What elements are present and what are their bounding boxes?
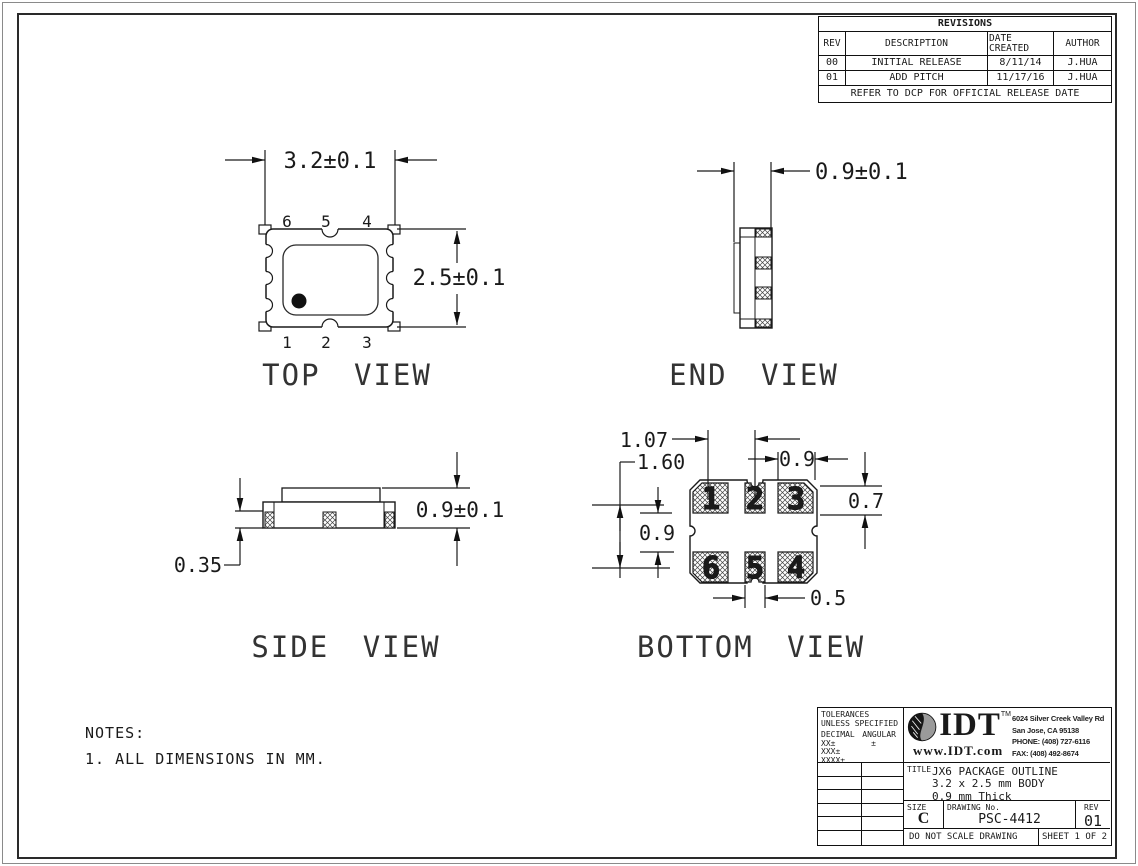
bottom-view-title: BOTTOM VIEW — [637, 630, 865, 664]
notes-heading: NOTES: — [85, 724, 326, 742]
revisions-title: REVISIONS — [819, 17, 1111, 31]
notes-item-1: 1. ALL DIMENSIONS IN MM. — [85, 750, 326, 768]
side-view-pad-dim: 0.35 — [174, 553, 222, 577]
side-view-height-dim: 0.9±0.1 — [416, 498, 505, 522]
bottom-dim-row-gap: 0.9 — [639, 521, 675, 545]
side-view: 0.35 0.9±0.1 SIDE VIEW — [174, 452, 504, 664]
tolerances-cell: TOLERANCES UNLESS SPECIFIED DECIMAL ANGU… — [818, 708, 904, 763]
side-view-lid — [282, 488, 380, 502]
top-view-title: TOP VIEW — [262, 358, 432, 392]
idt-logo-icon — [907, 710, 937, 744]
notes-block: NOTES: 1. ALL DIMENSIONS IN MM. — [85, 724, 326, 776]
size-cell: SIZE C — [904, 801, 944, 829]
title-label: TITLE — [907, 765, 931, 774]
sheet-note-cell: SHEET 1 OF 2 — [1039, 829, 1110, 845]
drawing-number-label: DRAWING No. — [947, 803, 1000, 812]
drawing-number-cell: DRAWING No. PSC-4412 — [944, 801, 1076, 829]
end-view-title: END VIEW — [669, 358, 839, 392]
table-row: 00 INITIAL RELEASE 8/11/14 J.HUA — [819, 55, 1111, 70]
bottom-pad-1: 1 — [702, 482, 720, 517]
end-view-thickness-dim: 0.9±0.1 — [815, 160, 908, 185]
rev-cell: REV 01 — [1076, 801, 1110, 829]
revisions-col-date: DATE CREATED — [987, 32, 1053, 55]
bottom-pad-5: 5 — [746, 551, 764, 586]
size-value: C — [904, 810, 943, 828]
revisions-footer: REFER TO DCP FOR OFFICIAL RELEASE DATE — [819, 85, 1111, 102]
address-line-2: San Jose, CA 95138 — [1012, 725, 1108, 737]
company-url: www.IDT.com — [913, 743, 1011, 759]
top-pin-6: 6 — [282, 212, 292, 231]
address-line-1: 6024 Silver Creek Valley Rd — [1012, 713, 1108, 725]
rev-01-author: J.HUA — [1053, 71, 1111, 85]
end-view: 0.9±0.1 END VIEW — [669, 160, 908, 392]
rev-01-date: 11/17/16 — [987, 71, 1053, 85]
bottom-dim-pad3-width: 0.9 — [779, 447, 815, 471]
bottom-pad-6: 6 — [702, 551, 720, 586]
revisions-col-author: AUTHOR — [1053, 32, 1111, 55]
title-cell: TITLE JX6 PACKAGE OUTLINE 3.2 x 2.5 mm B… — [904, 763, 1110, 801]
trademark-mark: TM — [1001, 710, 1011, 720]
tolerances-line2: UNLESS SPECIFIED — [821, 720, 900, 729]
address-line-3: PHONE: (408) 727-6116 — [1012, 736, 1108, 748]
idt-logo-text: IDT — [939, 710, 1001, 740]
top-view-width-dim: 3.2±0.1 — [284, 149, 377, 174]
revisions-col-rev: REV — [819, 32, 845, 55]
rev-00-desc: INITIAL RELEASE — [845, 56, 987, 70]
top-pin-2: 2 — [321, 333, 331, 352]
rev-01-desc: ADD PITCH — [845, 71, 987, 85]
bottom-dim-pad5-width: 0.5 — [810, 586, 846, 610]
drawing-sheet: 3.2±0.1 6 — [0, 0, 1138, 866]
bottom-pad-3: 3 — [787, 482, 805, 517]
top-view: 3.2±0.1 6 — [225, 149, 505, 392]
drawing-title-line2: 3.2 x 2.5 mm BODY — [932, 778, 1058, 790]
revisions-col-desc: DESCRIPTION — [845, 32, 987, 55]
rev-01: 01 — [819, 71, 845, 85]
top-pin-1: 1 — [282, 333, 292, 352]
rev-00: 00 — [819, 56, 845, 70]
drawing-number-value: PSC-4412 — [944, 812, 1075, 827]
end-view-body — [740, 228, 772, 328]
rev-00-date: 8/11/14 — [987, 56, 1053, 70]
rev-00-author: J.HUA — [1053, 56, 1111, 70]
scale-note: DO NOT SCALE DRAWING — [909, 832, 1017, 842]
bottom-pad-4: 4 — [787, 551, 805, 586]
revisions-table: REVISIONS REV DESCRIPTION DATE CREATED A… — [818, 16, 1112, 103]
revision-grid — [818, 763, 904, 845]
scale-note-cell: DO NOT SCALE DRAWING — [904, 829, 1039, 845]
pin1-marker-dot — [292, 294, 307, 309]
bottom-dim-pad-pitch: 1.07 — [620, 428, 668, 452]
table-row: 01 ADD PITCH 11/17/16 J.HUA — [819, 70, 1111, 85]
company-address: 6024 Silver Creek Valley Rd San Jose, CA… — [1012, 713, 1108, 759]
bottom-dim-pad-height: 0.7 — [848, 489, 884, 513]
rev-label: REV — [1084, 803, 1098, 812]
sheet-note: SHEET 1 OF 2 — [1042, 832, 1107, 842]
angular-label: ANGULAR — [862, 731, 896, 740]
rev-value: 01 — [1076, 812, 1110, 830]
bottom-dim-row-pitch: 1.60 — [637, 450, 685, 474]
company-cell: IDT TM www.IDT.com 6024 Silver Creek Val… — [904, 708, 1110, 763]
top-view-height-dim: 2.5±0.1 — [413, 266, 506, 291]
title-block: TOLERANCES UNLESS SPECIFIED DECIMAL ANGU… — [817, 707, 1112, 846]
top-pin-5: 5 — [321, 212, 331, 231]
tol-angular-pm: ± — [871, 740, 876, 749]
top-pin-4: 4 — [362, 212, 372, 231]
side-view-title: SIDE VIEW — [251, 630, 440, 664]
bottom-view: 1 2 3 6 5 4 1.07 1.60 — [592, 428, 884, 664]
top-pin-3: 3 — [362, 333, 372, 352]
address-line-4: FAX: (408) 492-8674 — [1012, 748, 1108, 760]
